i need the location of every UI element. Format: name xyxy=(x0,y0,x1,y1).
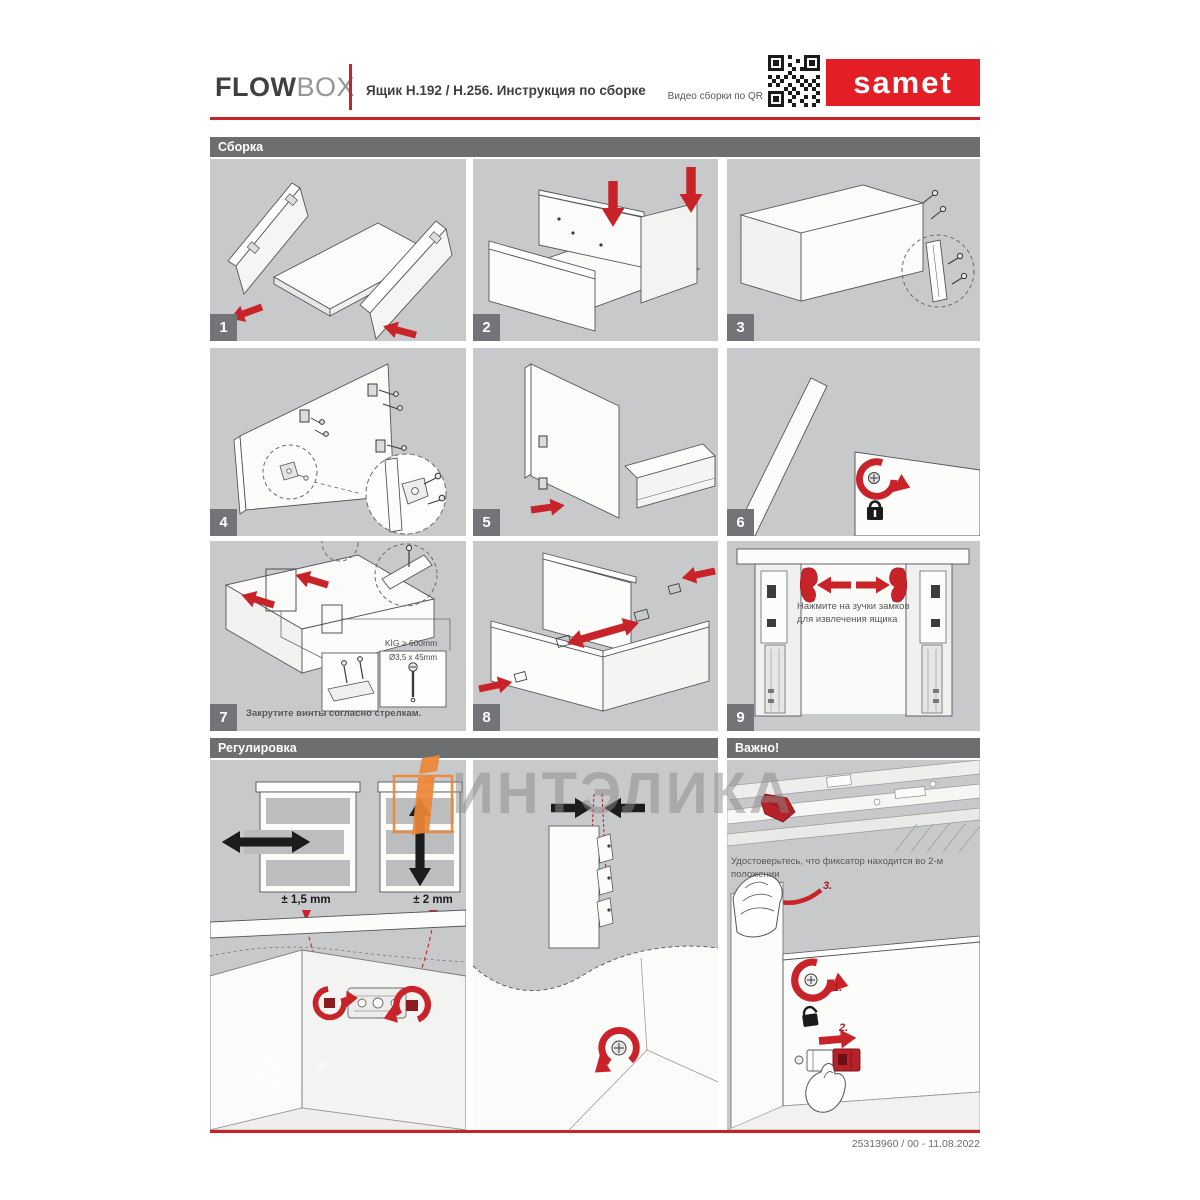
step-3-panel: 3 xyxy=(727,159,980,341)
step-1-illustration xyxy=(210,159,466,341)
header-rule xyxy=(210,117,980,120)
important-step-2-label: 2. xyxy=(839,1022,848,1034)
step-9-panel: Нажмите на зучки замков для извлечения я… xyxy=(727,541,980,731)
section-bar-adjustment: Регулировка xyxy=(210,738,718,758)
step-5-panel: 5 xyxy=(473,348,718,536)
kig-length-label: KİG ≥ 600mm xyxy=(360,638,462,648)
flowbox-logo-box: BOX xyxy=(296,72,355,102)
step-9-number: 9 xyxy=(727,704,754,731)
step-6-illustration xyxy=(727,348,980,536)
important-step-1-label: 1. xyxy=(833,982,842,994)
step-2-number: 2 xyxy=(473,314,500,341)
screw-size-label: Ø3,5 x 45mm xyxy=(381,653,445,662)
step-7-panel: KİG ≥ 600mm Ø3,5 x 45mm 7 Закрутите винт… xyxy=(210,541,466,731)
header-divider xyxy=(349,64,352,110)
important-note: Удостоверьтесь, что фиксатор находится в… xyxy=(731,856,976,882)
step-2-panel: 2 xyxy=(473,159,718,341)
adjustment-left-panel: ± 1,5 mm ± 2 mm xyxy=(210,760,466,1130)
step-4-illustration xyxy=(210,348,466,536)
document-code: 25313960 / 00 - 11.08.2022 xyxy=(700,1138,980,1150)
step-5-number: 5 xyxy=(473,509,500,536)
step-6-number: 6 xyxy=(727,509,754,536)
adjustment-middle-illustration xyxy=(473,760,718,1130)
step-4-panel: 4 xyxy=(210,348,466,536)
qr-code-icon xyxy=(768,55,820,107)
page-title: Ящик H.192 / H.256. Инструкция по сборке xyxy=(366,83,646,98)
step-3-illustration xyxy=(727,159,980,341)
step-7-illustration xyxy=(210,541,466,731)
step-4-number: 4 xyxy=(210,509,237,536)
step-8-number: 8 xyxy=(473,704,500,731)
flowbox-logo: FLOWBOX xyxy=(215,72,355,103)
flowbox-logo-flow: FLOW xyxy=(215,72,296,102)
step-9-note: Нажмите на зучки замков для извлечения я… xyxy=(797,601,917,627)
adjustment-middle-panel xyxy=(473,760,718,1130)
step-2-illustration xyxy=(473,159,718,341)
step-5-illustration xyxy=(473,348,718,536)
step-8-illustration xyxy=(473,541,718,731)
important-step-3-label: 3. xyxy=(823,880,832,892)
adjustment-left-illustration xyxy=(210,760,466,1130)
step-9-illustration xyxy=(727,541,980,731)
step-7-caption: Закрутите винты согласно стрелкам. xyxy=(246,708,458,719)
step-6-panel: 6 xyxy=(727,348,980,536)
step-3-number: 3 xyxy=(727,314,754,341)
important-panel: Удостоверьтесь, что фиксатор находится в… xyxy=(727,760,980,1130)
qr-caption: Видео сборки по QR xyxy=(645,91,763,102)
step-1-panel: 1 xyxy=(210,159,466,341)
step-8-panel: 8 xyxy=(473,541,718,731)
step-7-number: 7 xyxy=(210,704,237,731)
horizontal-range-label: ± 1,5 mm xyxy=(268,894,344,906)
vertical-range-label: ± 2 mm xyxy=(395,894,471,906)
samet-logo: samet xyxy=(826,59,980,106)
section-bar-assembly: Сборка xyxy=(210,137,980,157)
section-bar-important: Важно! xyxy=(727,738,980,758)
hand-over-panel xyxy=(733,874,782,937)
important-illustration xyxy=(727,760,980,1130)
step-1-number: 1 xyxy=(210,314,237,341)
assembly-instruction-sheet: FLOWBOX Ящик H.192 / H.256. Инструкция п… xyxy=(0,0,1200,1200)
footer-rule xyxy=(210,1130,980,1133)
